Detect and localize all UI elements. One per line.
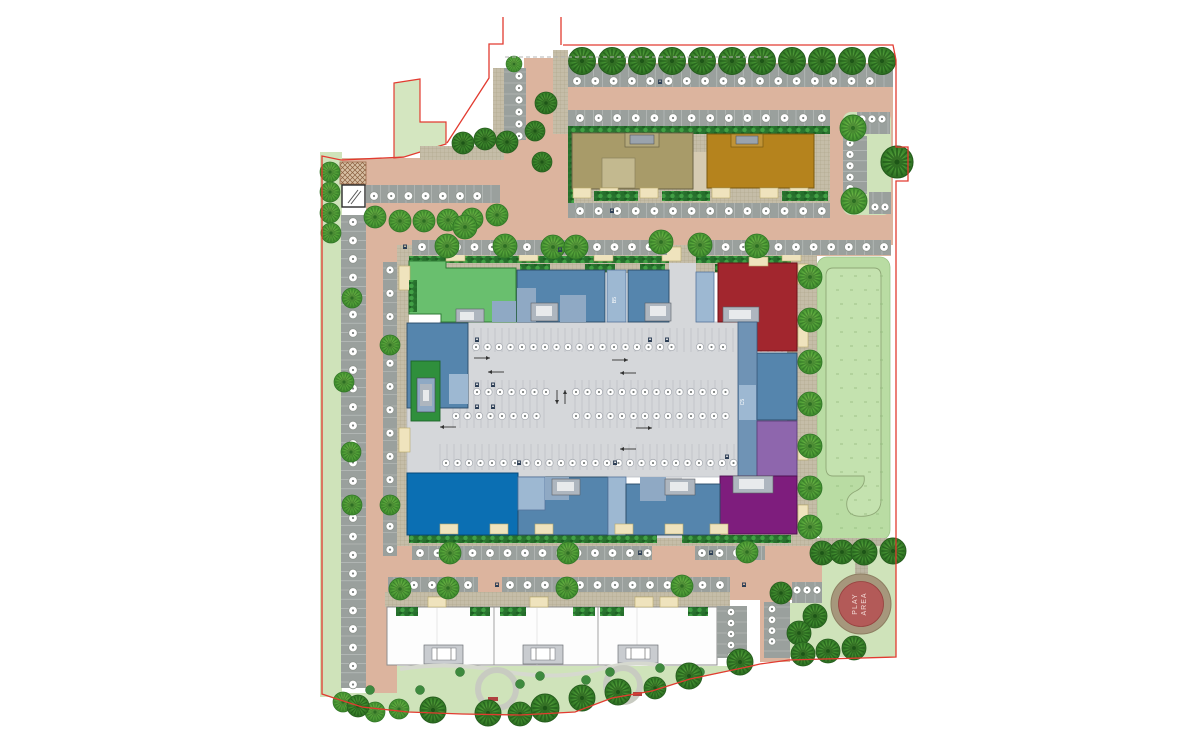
svg-text:PLAY: PLAY xyxy=(852,593,859,614)
svg-text:B5: B5 xyxy=(612,297,618,303)
svg-text:AREA: AREA xyxy=(861,592,868,615)
svg-text:C5: C5 xyxy=(740,399,746,406)
